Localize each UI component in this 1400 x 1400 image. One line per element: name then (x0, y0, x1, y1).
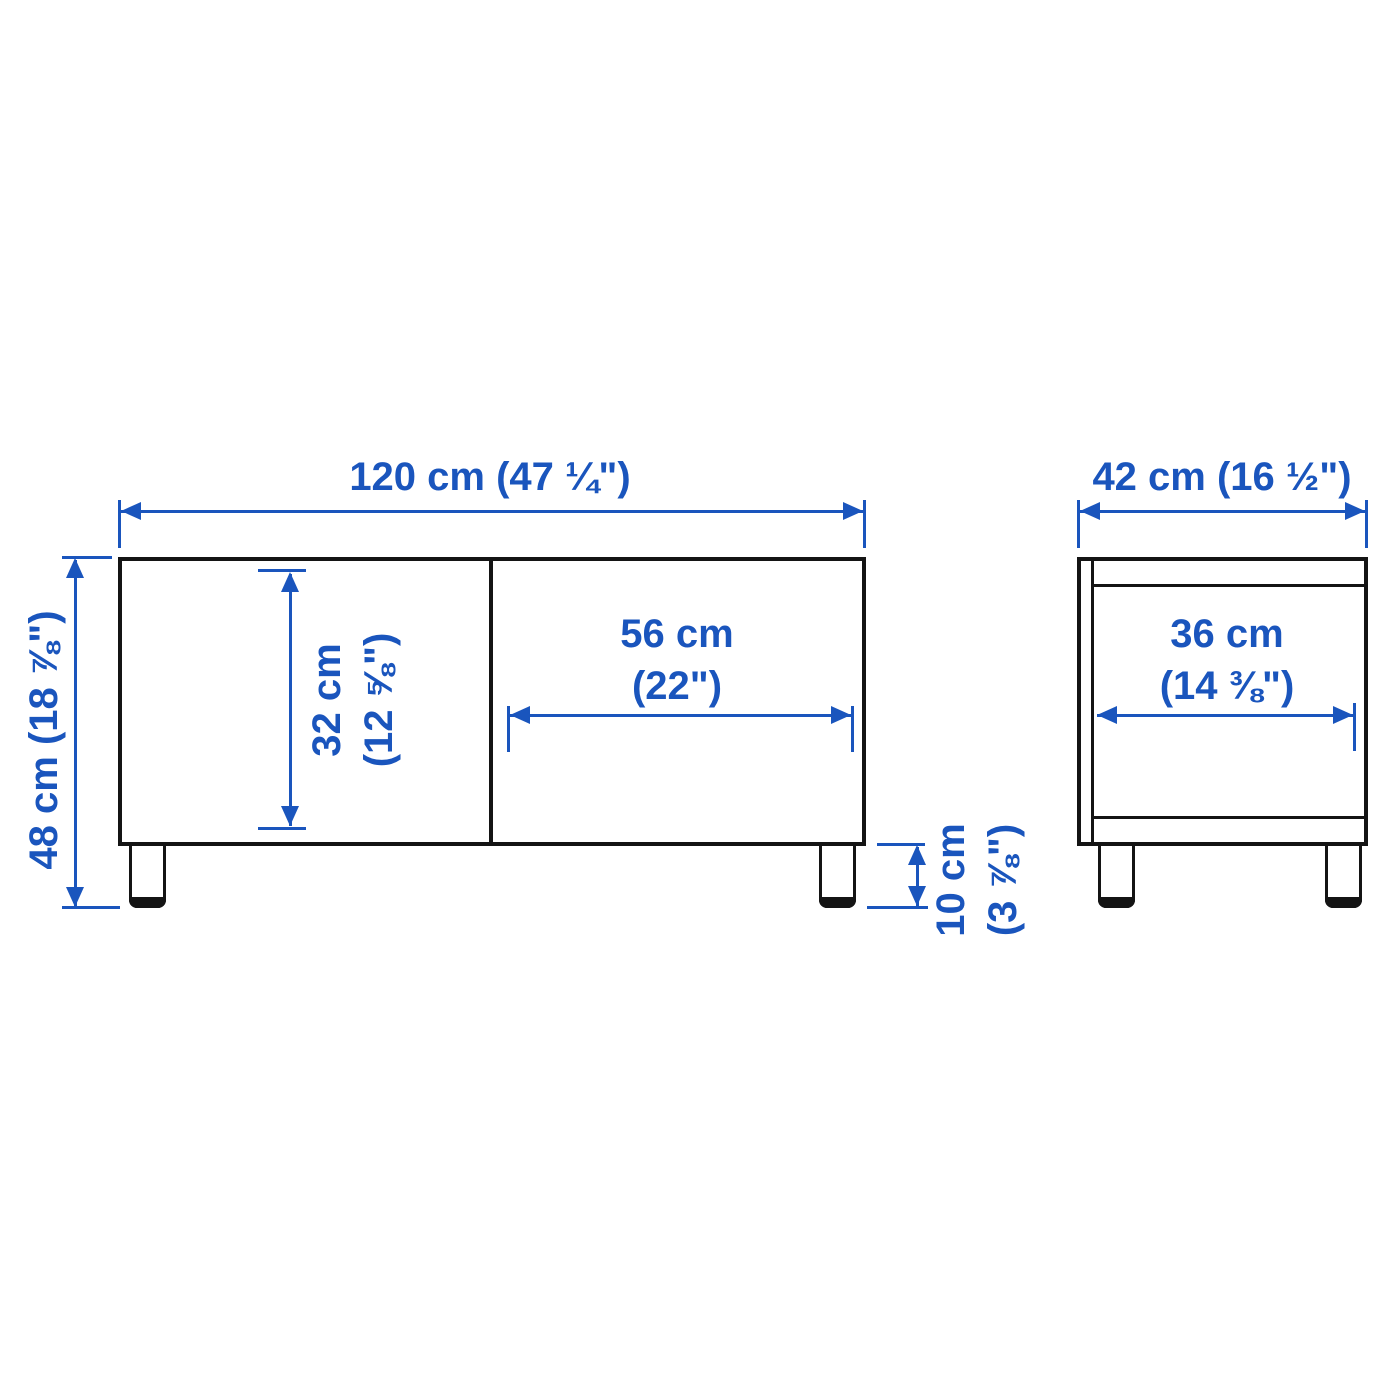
dimension-line (121, 510, 863, 513)
arrowhead-down-icon (908, 886, 926, 906)
front-right-leg-foot (819, 897, 856, 908)
door-width-value: 56 cm (527, 608, 827, 660)
arrowhead-up-icon (908, 845, 926, 865)
dimension-line (289, 574, 292, 826)
inner-depth-label: 36 cm (14 ⅜") (1077, 608, 1377, 712)
leg-height-label: 10 cm (3 ⅞") (925, 730, 1029, 1030)
arrowhead-left-icon (121, 502, 141, 520)
extension-tick (258, 827, 306, 830)
inner-depth-inches: (14 ⅜") (1077, 660, 1377, 712)
front-door-divider (489, 561, 493, 842)
leg-height-value: 10 cm (925, 730, 977, 1030)
dimension-line (510, 714, 851, 717)
side-front-leg (1098, 846, 1135, 908)
arrowhead-down-icon (281, 806, 299, 826)
door-height-label: 32 cm (12 ⅝") (301, 550, 405, 850)
extension-tick (863, 500, 866, 548)
door-height-inches: (12 ⅝") (353, 550, 405, 850)
arrowhead-left-icon (1080, 502, 1100, 520)
extension-tick (851, 706, 854, 752)
dimension-diagram: 120 cm (47 ¼") 48 cm (18 ⅞") 32 cm (12 ⅝… (0, 0, 1400, 1400)
front-left-leg-foot (129, 897, 166, 908)
door-width-label: 56 cm (22") (527, 608, 827, 712)
door-width-inches: (22") (527, 660, 827, 712)
leg-height-inches: (3 ⅞") (977, 730, 1029, 1030)
side-front-leg-foot (1098, 897, 1135, 908)
dimension-line (74, 560, 77, 907)
extension-tick (867, 906, 928, 909)
inner-depth-value: 36 cm (1077, 608, 1377, 660)
extension-tick (1365, 500, 1368, 548)
front-right-leg (819, 846, 856, 908)
side-back-leg (1325, 846, 1362, 908)
dimension-line (1080, 510, 1366, 513)
front-left-leg (129, 846, 166, 908)
overall-height-label: 48 cm (18 ⅞") (19, 440, 69, 1040)
arrowhead-up-icon (281, 572, 299, 592)
dimension-line (1097, 714, 1354, 717)
arrowhead-right-icon (843, 502, 863, 520)
depth-label: 42 cm (16 ½") (1022, 452, 1400, 502)
overall-width-label: 120 cm (47 ¼") (190, 452, 790, 502)
arrowhead-right-icon (1345, 502, 1365, 520)
arrowhead-right-icon (831, 706, 851, 724)
side-top-panel-line (1094, 584, 1364, 587)
side-bottom-panel-line (1094, 816, 1364, 819)
door-height-value: 32 cm (301, 550, 353, 850)
side-back-leg-foot (1325, 897, 1362, 908)
